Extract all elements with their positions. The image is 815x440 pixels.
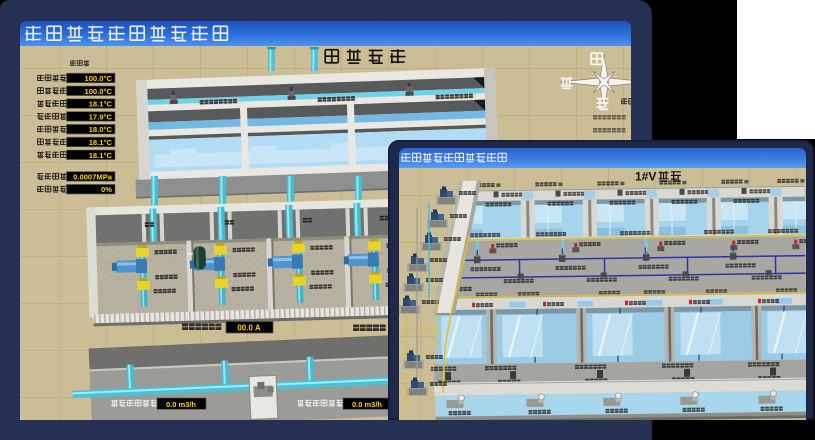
svg-text:100.0°C: 100.0°C: [84, 74, 112, 83]
svg-text:0.0007MPa: 0.0007MPa: [73, 172, 113, 181]
svg-text:1#V: 1#V: [635, 169, 656, 183]
svg-text:0%: 0%: [101, 185, 112, 194]
svg-text:18.1°C: 18.1°C: [89, 151, 113, 160]
svg-text:0.0 m3/h: 0.0 m3/h: [352, 400, 382, 409]
svg-text:18.1°C: 18.1°C: [89, 100, 113, 109]
svg-text:00.0 A: 00.0 A: [237, 324, 260, 333]
svg-text:100.0°C: 100.0°C: [84, 87, 112, 96]
svg-text:17.9°C: 17.9°C: [89, 112, 113, 121]
svg-text:18.0°C: 18.0°C: [89, 125, 113, 134]
svg-text:0.0 m3/h: 0.0 m3/h: [166, 400, 196, 409]
svg-text:18.1°C: 18.1°C: [89, 138, 113, 147]
